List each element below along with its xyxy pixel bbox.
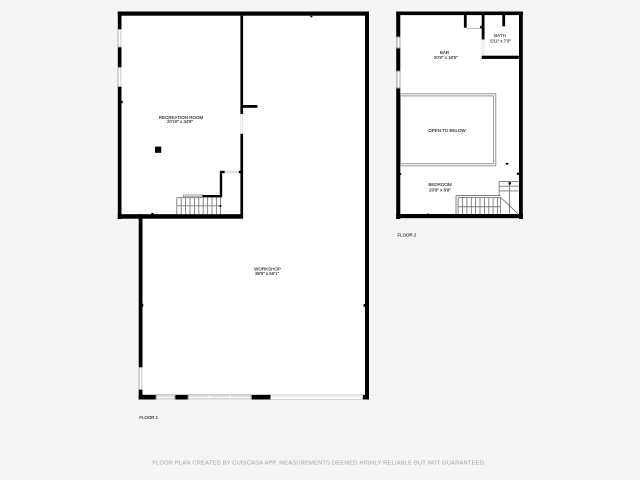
svg-text:BEDROOM: BEDROOM — [428, 182, 452, 187]
svg-text:20'10" x 34'8": 20'10" x 34'8" — [167, 119, 193, 124]
svg-text:20'9" x 8'9": 20'9" x 8'9" — [429, 187, 451, 192]
svg-text:38'9" x 66'1": 38'9" x 66'1" — [255, 271, 280, 276]
svg-text:FLOOR 2: FLOOR 2 — [398, 233, 417, 238]
svg-text:FLOOR PLAN CREATED BY CUBICASA: FLOOR PLAN CREATED BY CUBICASA APP. MEAS… — [152, 461, 486, 467]
svg-text:5'11" x 7'3": 5'11" x 7'3" — [490, 38, 511, 43]
svg-text:BATH: BATH — [494, 33, 506, 38]
svg-text:FLOOR 1: FLOOR 1 — [139, 415, 158, 420]
svg-text:OPEN TO BELOW: OPEN TO BELOW — [428, 128, 466, 133]
svg-text:20'9" x 18'5": 20'9" x 18'5" — [434, 55, 459, 60]
